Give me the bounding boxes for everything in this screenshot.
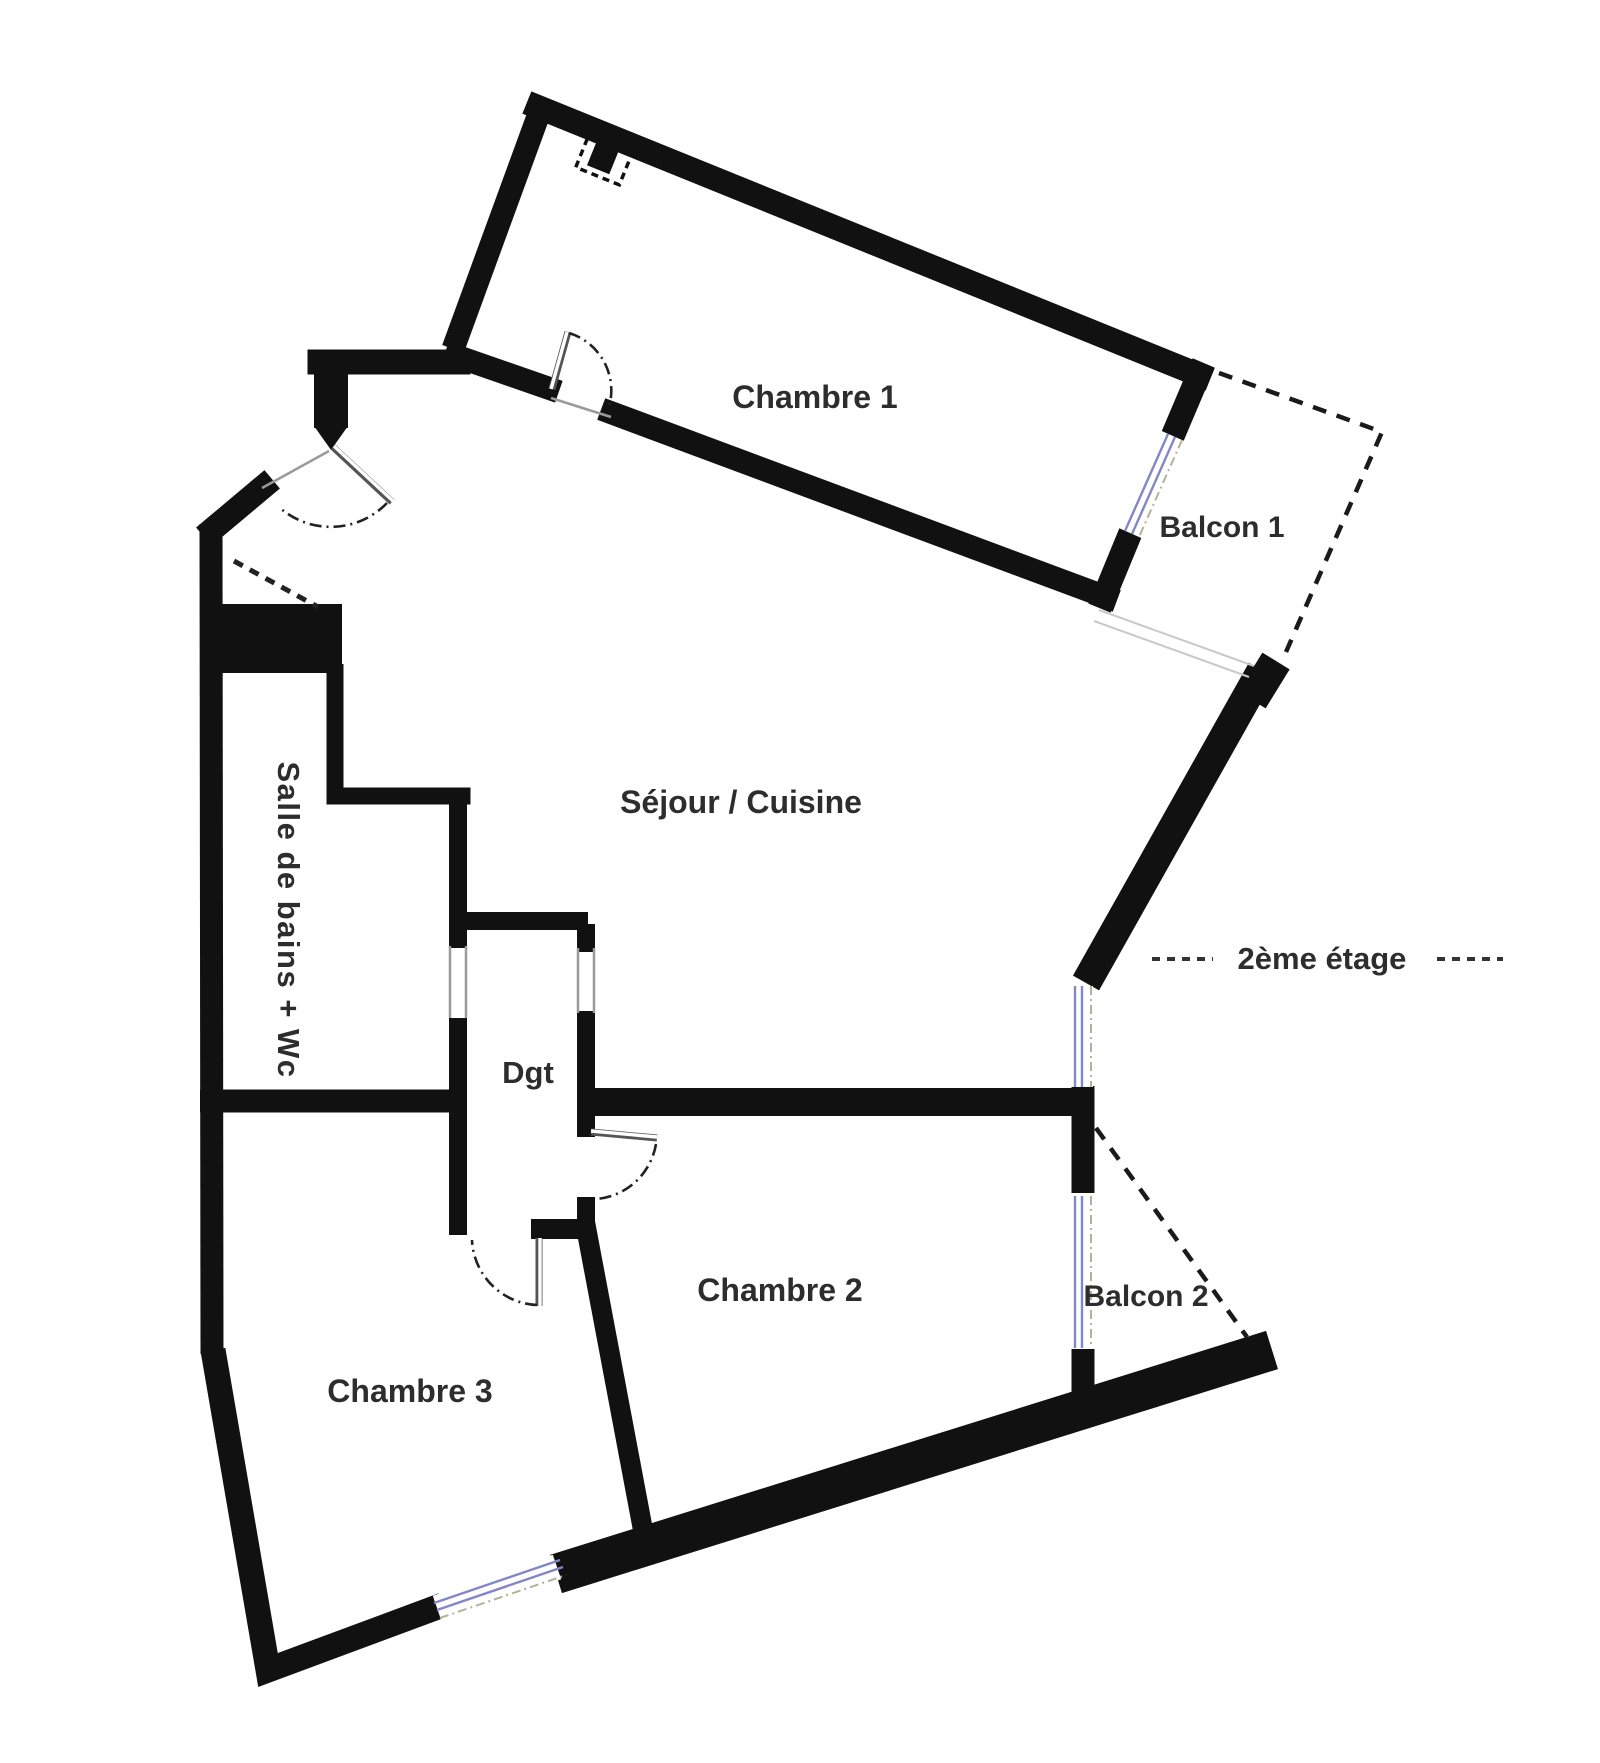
svg-text:2ème étage: 2ème étage — [1238, 941, 1407, 976]
svg-text:Chambre 1: Chambre 1 — [732, 379, 897, 415]
svg-text:Salle de bains + Wc: Salle de bains + Wc — [271, 761, 306, 1078]
svg-text:Séjour / Cuisine: Séjour / Cuisine — [620, 784, 862, 820]
svg-text:Dgt: Dgt — [502, 1055, 554, 1090]
svg-text:Balcon 1: Balcon 1 — [1159, 511, 1284, 544]
svg-text:Balcon 2: Balcon 2 — [1083, 1280, 1208, 1313]
svg-text:Chambre 2: Chambre 2 — [697, 1272, 862, 1308]
svg-text:Chambre 3: Chambre 3 — [327, 1373, 492, 1409]
